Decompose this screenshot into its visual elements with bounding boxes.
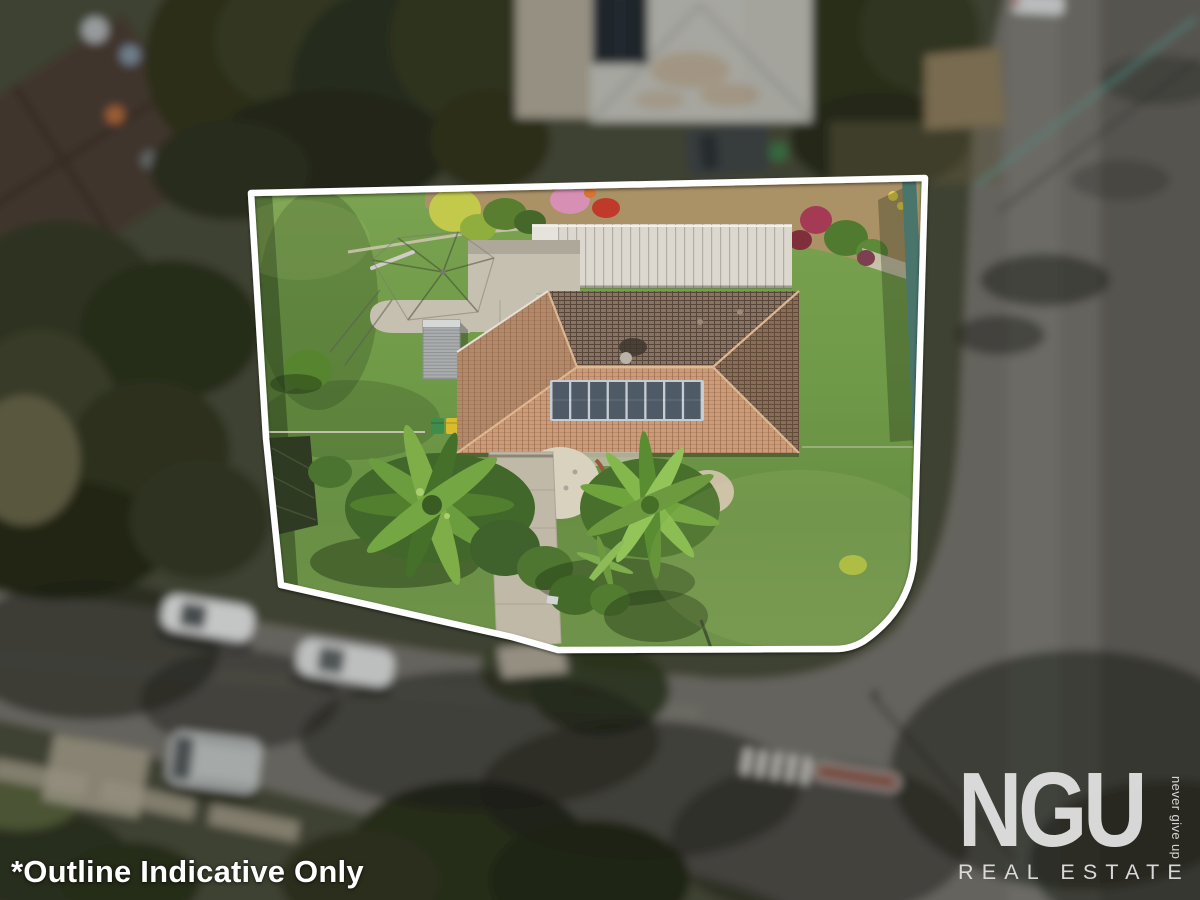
- shrub: [857, 250, 875, 266]
- letterbox: [546, 595, 558, 604]
- disclaimer-text: *Outline Indicative Only: [11, 854, 364, 890]
- satellite-dish: [620, 352, 632, 364]
- watermark-logo: NGU REAL ESTATE never give up: [958, 768, 1196, 893]
- house-roof: [457, 291, 799, 466]
- property-grounds: [230, 168, 950, 663]
- brand-tagline-text: never give up: [1169, 776, 1184, 859]
- aerial-photo: *Outline Indicative Only NGU REAL ESTATE…: [0, 0, 1200, 900]
- brand-text: NGU: [958, 768, 1158, 852]
